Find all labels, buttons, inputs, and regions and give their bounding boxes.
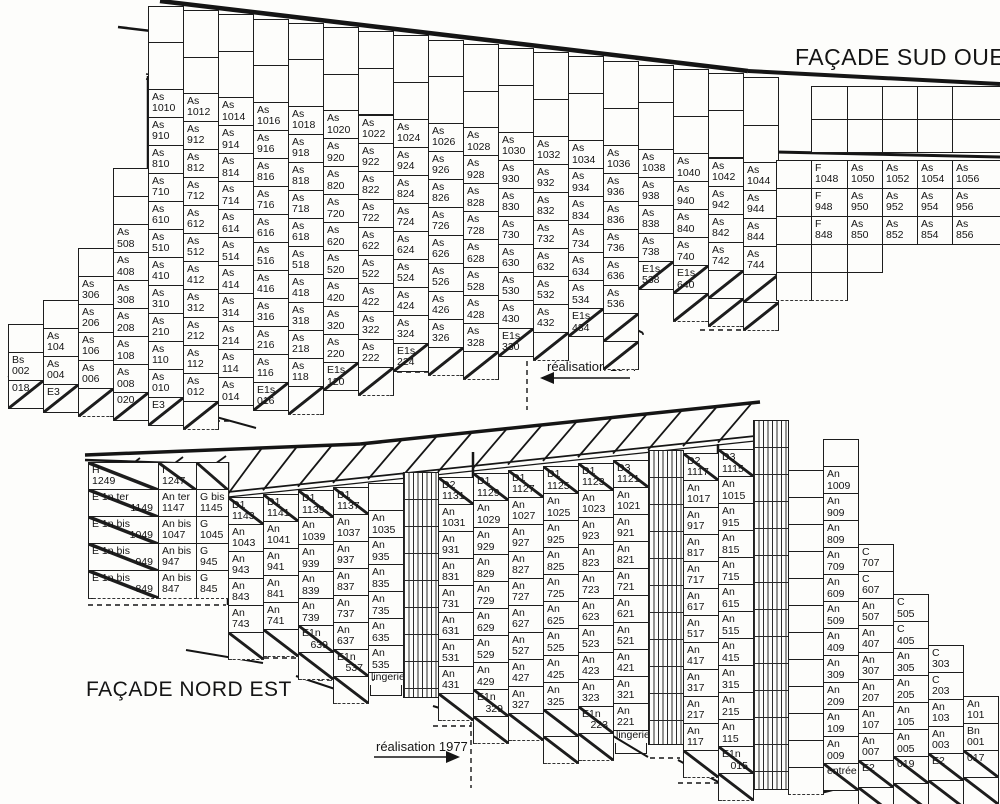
unit-cell: As420 (323, 278, 359, 307)
unit-type: As (222, 268, 252, 279)
unit-cell: An423 (578, 652, 614, 680)
unit-type: As (222, 212, 252, 223)
unit-cell: An731 (438, 585, 474, 613)
unit-type: An (477, 557, 507, 568)
unit-cell: As822 (358, 171, 394, 200)
unit-number: 848 (815, 230, 846, 241)
unit-number: 1056 (956, 174, 999, 185)
unit-cell: As742 (708, 242, 744, 271)
unit-cell: As426 (428, 291, 464, 320)
unit-number: 1014 (222, 112, 252, 123)
unit-cell: As312 (183, 289, 219, 318)
unit-number: 305 (897, 663, 927, 674)
blank-cell (776, 272, 812, 301)
unit-number: 918 (292, 148, 322, 159)
unit-number: 327 (512, 700, 542, 711)
unit-number: 938 (642, 191, 672, 202)
unit-number: 944 (747, 204, 777, 215)
unit-cell: As632 (533, 248, 569, 277)
unit-number: 210 (152, 327, 182, 338)
unit-number: 008 (117, 379, 147, 390)
unit-number: 517 (687, 629, 717, 640)
unit-number: 1125 (547, 481, 577, 492)
unit-type: As (572, 255, 602, 266)
unit-type: As (677, 184, 707, 195)
unit-number: 909 (827, 508, 857, 519)
unit-cell: As318 (288, 302, 324, 331)
unit-number: 923 (582, 531, 612, 542)
unit-cell: An931 (438, 531, 474, 559)
unit-cell: As424 (393, 287, 429, 316)
unit-type: E1s (572, 311, 602, 322)
unit-cell: An107 (858, 706, 894, 734)
unit-cell: I1247 (158, 462, 197, 491)
unit-number: 920 (327, 153, 357, 164)
blank-cell (428, 347, 464, 376)
unit-number: 924 (397, 161, 427, 172)
blank-cell (788, 578, 824, 606)
unit-cell: As636 (603, 257, 639, 286)
unit-cell: An417 (683, 642, 719, 670)
unit-cell: As928 (463, 155, 499, 184)
unit-type: As (222, 352, 252, 363)
unit-number: 316 (257, 312, 287, 323)
attic-cell (638, 102, 674, 150)
unit-type: An (827, 523, 857, 534)
unit-number: 1020 (327, 125, 357, 136)
blank-cell (788, 551, 824, 579)
unit-number: 524 (397, 273, 427, 284)
unit-cell: As1012 (183, 93, 219, 122)
service-label: lingerie (371, 672, 403, 683)
unit-cell: An739 (298, 598, 334, 626)
unit-cell: An625 (543, 601, 579, 629)
unit-number: 1010 (152, 103, 182, 114)
attic-cell (917, 86, 953, 120)
attic-cell (148, 42, 184, 89)
attic-cell (952, 86, 1000, 120)
attic-cell (882, 86, 918, 120)
unit-number: 740 (677, 252, 707, 263)
unit-cell: As1018 (288, 106, 324, 135)
unit-number: 739 (302, 613, 332, 624)
unit-cell: E3 (148, 397, 184, 426)
unit-cell: As630 (498, 244, 534, 273)
blank-cell (358, 367, 394, 396)
unit-number: 821 (617, 555, 647, 566)
unit-number: 410 (152, 271, 182, 282)
blank-cell (788, 470, 824, 498)
unit-cell: As220 (323, 334, 359, 363)
unit-cell: An915 (718, 503, 754, 531)
unit-cell: An935 (368, 537, 404, 565)
truss-upper-chord (360, 402, 760, 444)
blank-cell (578, 733, 614, 761)
unit-number: 628 (467, 254, 497, 265)
unit-number: 615 (722, 599, 752, 610)
unit-cell: As738 (638, 233, 674, 262)
unit-cell: As812 (183, 149, 219, 178)
unit-type: An (827, 577, 857, 588)
unit-cell: As740 (673, 237, 709, 266)
unit-cell: An115 (718, 719, 754, 747)
unit-cell: As524 (393, 259, 429, 288)
unit-cell: As522 (358, 255, 394, 284)
blank-cell (438, 693, 474, 721)
unit-cell: As710 (148, 173, 184, 202)
unit-number: 002 (12, 366, 42, 377)
unit-cell: An737 (333, 595, 369, 623)
unit-cell: As816 (253, 158, 289, 187)
unit-cell: An1015 (718, 476, 754, 504)
attic-cell (358, 31, 394, 69)
unit-cell: An bis1047 (158, 516, 197, 545)
unit-cell: lingerie (368, 672, 404, 700)
unit-number: 512 (187, 247, 217, 258)
unit-number: 532 (537, 290, 567, 301)
unit-number: 115 (722, 734, 752, 745)
unit-number: 427 (512, 673, 542, 684)
unit-number: 207 (862, 693, 892, 704)
unit-cell: As208 (113, 308, 149, 337)
unit-number: 220 (327, 349, 357, 360)
unit-number: 314 (222, 308, 252, 319)
unit-number: 940 (677, 196, 707, 207)
unit-cell: E 1n ter1149 (88, 489, 159, 518)
unit-number: 622 (362, 241, 392, 252)
unit-number: 1021 (617, 501, 647, 512)
unit-type: As (572, 283, 602, 294)
unit-number: 520 (327, 265, 357, 276)
unit-type: As (677, 212, 707, 223)
unit-number: 422 (362, 297, 392, 308)
blank-cell (743, 274, 779, 303)
unit-number: 215 (722, 707, 752, 718)
unit-cell: As1020 (323, 110, 359, 139)
unit-cell: As716 (253, 186, 289, 215)
unit-label: entrée (827, 766, 857, 777)
unit-cell: 018 (8, 380, 44, 409)
unit-cell: An615 (718, 584, 754, 612)
unit-number: 224 (397, 357, 427, 368)
unit-number: 717 (687, 575, 717, 586)
unit-cell: C707 (858, 544, 894, 572)
unit-number: 731 (442, 599, 472, 610)
unit-number: 849 (92, 584, 157, 595)
unit-number: 1141 (267, 508, 297, 519)
stair-shaft-hatch (648, 450, 684, 745)
unit-number: 917 (687, 521, 717, 532)
unit-cell: As010 (148, 369, 184, 398)
unit-cell: C607 (858, 571, 894, 599)
unit-cell: As1026 (428, 123, 464, 152)
unit-type: E1s (677, 268, 707, 279)
unit-number: 830 (502, 202, 532, 213)
unit-number: 632 (537, 262, 567, 273)
unit-type: As (222, 100, 252, 111)
unit-number: 623 (582, 612, 612, 623)
unit-number: 852 (886, 230, 916, 241)
unit-cell: An427 (508, 659, 544, 687)
unit-number: 414 (222, 280, 252, 291)
unit-number: 117 (687, 737, 717, 748)
unit-number: 722 (362, 213, 392, 224)
unit-cell: D11127 (508, 470, 544, 498)
unit-number: 1018 (292, 120, 322, 131)
unit-number: 003 (932, 740, 962, 751)
unit-cell: 020 (113, 392, 149, 421)
unit-type: As (222, 128, 252, 139)
unit-number: 1037 (337, 528, 367, 539)
unit-number: 1145 (200, 503, 227, 514)
attic-cell (358, 68, 394, 116)
unit-number: 1016 (257, 116, 287, 127)
unit-cell: C505 (893, 594, 929, 622)
unit-number: 016 (257, 396, 287, 407)
unit-number: 928 (467, 170, 497, 181)
unit-cell: As528 (463, 267, 499, 296)
unit-cell: As422 (358, 283, 394, 312)
blank-cell (776, 188, 812, 217)
unit-cell: An429 (473, 662, 509, 690)
unit-cell: E1n537 (333, 649, 369, 677)
unit-cell: E2 (928, 753, 964, 781)
unit-cell: As514 (218, 237, 254, 266)
unit-cell: As926 (428, 151, 464, 180)
title-facade-nord-est: FAÇADE NORD EST (86, 678, 292, 702)
unit-type: As (327, 337, 357, 348)
blank-cell (263, 629, 299, 657)
unit-number: 925 (547, 535, 577, 546)
unit-cell: An921 (613, 514, 649, 542)
unit-type: E1n (302, 628, 332, 639)
unit-cell: As618 (288, 218, 324, 247)
unit-type: An (827, 496, 857, 507)
unit-number: 612 (187, 219, 217, 230)
unit-number: 621 (617, 609, 647, 620)
unit-number: 839 (302, 586, 332, 597)
unit-type: An (827, 658, 857, 669)
unit-cell: As104 (43, 328, 79, 357)
unit-cell: An829 (473, 554, 509, 582)
unit-number: 618 (292, 232, 322, 243)
unit-number: 816 (257, 172, 287, 183)
unit-cell: An1029 (473, 500, 509, 528)
unit-cell: An103 (928, 699, 964, 727)
unit-cell: Bs002 (8, 352, 44, 381)
unit-number: 915 (722, 518, 752, 529)
unit-cell: As508 (113, 224, 149, 253)
unit-type: An (827, 604, 857, 615)
bracket-mark (370, 685, 402, 696)
unit-number: 609 (827, 589, 857, 600)
unit-cell: As1022 (358, 115, 394, 144)
unit-cell: As814 (218, 153, 254, 182)
unit-number: 635 (372, 633, 402, 644)
attic-cell (8, 324, 44, 353)
unit-cell: G bis1145 (196, 489, 229, 518)
unit-number: 505 (897, 609, 927, 620)
unit-cell: F1048 (811, 160, 848, 189)
truss-diagonal (543, 421, 577, 461)
unit-cell: An937 (333, 541, 369, 569)
unit-number: 303 (932, 659, 962, 670)
unit-cell: As320 (323, 306, 359, 335)
attic-cell (463, 91, 499, 129)
unit-number: 823 (582, 558, 612, 569)
unit-number: 434 (572, 323, 602, 334)
unit-cell: E1n329 (473, 689, 509, 717)
unit-number: 715 (722, 572, 752, 583)
unit-cell: Bn001 (963, 723, 999, 751)
unit-cell: As520 (323, 250, 359, 279)
unit-cell: D21131 (438, 477, 474, 505)
unit-number: 529 (477, 650, 507, 661)
unit-cell: An827 (508, 551, 544, 579)
unit-number: 218 (292, 344, 322, 355)
blank-cell (788, 524, 824, 552)
unit-number: 837 (337, 582, 367, 593)
stair-shaft-hatch (403, 472, 439, 698)
unit-cell: F948 (811, 188, 848, 217)
unit-label: E2 (932, 756, 962, 767)
unit-cell: As1050 (847, 160, 883, 189)
truss-diagonal (578, 418, 612, 458)
unit-cell: An1009 (823, 466, 859, 494)
attic-cell (673, 69, 709, 117)
unit-type: As (572, 227, 602, 238)
truss-diagonal (613, 414, 647, 454)
unit-cell: An825 (543, 547, 579, 575)
unit-cell: An621 (613, 595, 649, 623)
unit-number: 431 (442, 680, 472, 691)
unit-cell: As844 (743, 218, 779, 247)
unit-cell: D11137 (333, 487, 369, 515)
unit-number: 640 (677, 280, 707, 291)
attic-cell (952, 119, 1000, 153)
unit-cell: As410 (148, 257, 184, 286)
unit-type: As (222, 240, 252, 251)
unit-cell: D11143 (228, 497, 264, 525)
unit-number: 927 (512, 538, 542, 549)
unit-cell: As310 (148, 285, 184, 314)
unit-number: 538 (642, 275, 672, 286)
unit-cell: As206 (78, 304, 114, 333)
unit-number: 310 (152, 299, 182, 310)
truss-diagonal (333, 443, 367, 483)
unit-number: 536 (607, 299, 637, 310)
unit-cell: As218 (288, 330, 324, 359)
blank-cell (788, 740, 824, 768)
unit-number: 1047 (162, 530, 195, 541)
unit-number: 1035 (372, 525, 402, 536)
attic-cell (288, 59, 324, 107)
attic-cell (603, 61, 639, 109)
unit-cell: As942 (708, 186, 744, 215)
unit-number: 507 (862, 612, 892, 623)
unit-cell: An529 (473, 635, 509, 663)
unit-number: 639 (302, 640, 332, 651)
unit-number: 407 (862, 639, 892, 650)
unit-number: 010 (152, 383, 182, 394)
unit-cell: An735 (368, 591, 404, 619)
unit-cell: D31121 (613, 460, 649, 488)
unit-number: 856 (956, 230, 999, 241)
roof-line (748, 71, 1000, 84)
blank-cell (533, 332, 569, 361)
attic-cell (498, 48, 534, 86)
unit-number: 734 (572, 239, 602, 250)
unit-cell: An525 (543, 628, 579, 656)
unit-number: 405 (897, 636, 927, 647)
unit-cell: As518 (288, 246, 324, 275)
unit-cell: An1017 (683, 480, 719, 508)
blank-cell (823, 439, 859, 467)
unit-number: 416 (257, 284, 287, 295)
unit-number: 707 (862, 558, 892, 569)
unit-number: 824 (397, 189, 427, 200)
unit-cell: As1032 (533, 136, 569, 165)
unit-cell: As306 (78, 276, 114, 305)
unit-label: 018 (12, 383, 42, 394)
unit-cell: As620 (323, 222, 359, 251)
unit-number: 005 (897, 744, 927, 755)
truss-diagonal (298, 445, 332, 487)
unit-number: 223 (582, 720, 612, 731)
unit-cell: E1s434 (568, 308, 604, 337)
unit-cell: As530 (498, 272, 534, 301)
unit-number: 712 (187, 191, 217, 202)
blank-cell (776, 216, 812, 245)
unit-type: D1 (477, 476, 507, 487)
unit-cell: An841 (263, 575, 299, 603)
unit-number: 624 (397, 245, 427, 256)
unit-cell: As014 (218, 377, 254, 406)
unit-cell: An627 (508, 605, 544, 633)
truss-diagonal (683, 407, 717, 447)
blank-cell (858, 787, 894, 804)
unit-cell: E1s330 (498, 328, 534, 357)
blank-cell (788, 632, 824, 660)
unit-number: 926 (432, 165, 462, 176)
unit-type: An (477, 665, 507, 676)
unit-number: 429 (477, 677, 507, 688)
unit-cell: As824 (393, 175, 429, 204)
unit-cell: G945 (196, 543, 229, 572)
unit-number: 110 (152, 355, 182, 366)
unit-cell: D11123 (578, 463, 614, 491)
unit-cell: An1043 (228, 524, 264, 552)
unit-cell: An727 (508, 578, 544, 606)
unit-cell: An315 (718, 665, 754, 693)
unit-cell: G845 (196, 570, 229, 599)
unit-number: 118 (292, 372, 322, 383)
blank-cell (811, 272, 848, 301)
unit-number: 914 (222, 140, 252, 151)
blank-cell (288, 386, 324, 415)
unit-number: 116 (257, 368, 287, 379)
unit-cell: As1024 (393, 119, 429, 148)
unit-number: 205 (897, 690, 927, 701)
attic-cell (428, 76, 464, 124)
unit-cell: G1045 (196, 516, 229, 545)
unit-number: 221 (617, 717, 647, 728)
unit-type: As (572, 143, 602, 154)
unit-number: 521 (617, 636, 647, 647)
unit-cell: As118 (288, 358, 324, 387)
blank-cell (183, 401, 219, 430)
unit-cell: As950 (847, 188, 883, 217)
